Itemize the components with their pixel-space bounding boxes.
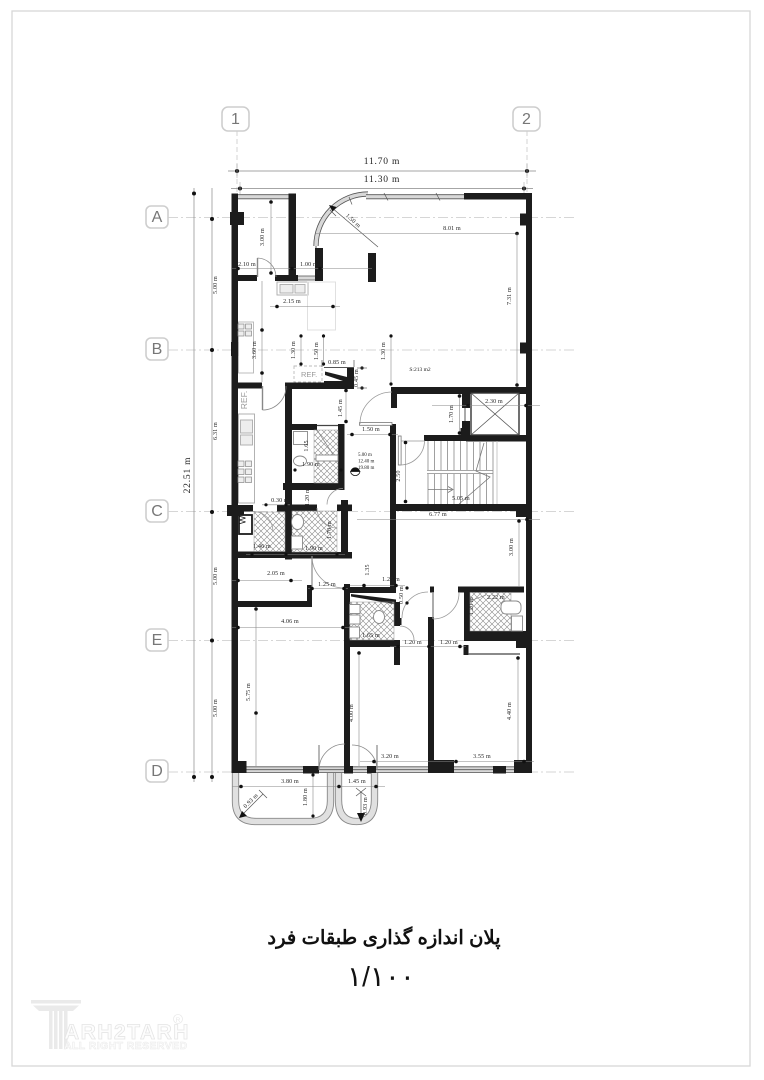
svg-text:پلان اندازه گذاری طبقات فرد: پلان اندازه گذاری طبقات فرد — [267, 925, 501, 950]
svg-text:2.30 m: 2.30 m — [485, 399, 503, 405]
svg-text:3.60 m: 3.60 m — [252, 341, 258, 359]
svg-text:1.70 m: 1.70 m — [327, 521, 333, 539]
svg-text:1: 1 — [231, 111, 240, 128]
svg-text:1.45 m: 1.45 m — [338, 399, 344, 417]
svg-text:3.00 m: 3.00 m — [509, 538, 515, 556]
svg-text:6.77 m: 6.77 m — [429, 512, 447, 518]
svg-text:12.40 m: 12.40 m — [358, 460, 375, 465]
svg-text:0.93 m: 0.93 m — [243, 793, 260, 810]
svg-text:2: 2 — [522, 111, 531, 128]
svg-text:REF.: REF. — [301, 370, 317, 379]
svg-text:2.05 m: 2.05 m — [267, 571, 285, 577]
svg-text:5.75 m: 5.75 m — [246, 683, 252, 701]
svg-text:1.25 m: 1.25 m — [382, 577, 400, 583]
svg-text:S:213 m2: S:213 m2 — [409, 367, 430, 373]
svg-text:0.30 m: 0.30 m — [271, 498, 289, 504]
svg-text:REF.: REF. — [239, 391, 249, 409]
svg-text:3.55 m: 3.55 m — [473, 754, 491, 760]
svg-text:W: W — [238, 515, 248, 524]
svg-text:1.50 m: 1.50 m — [314, 342, 320, 360]
svg-text:4.06 m: 4.06 m — [281, 619, 299, 625]
svg-text:0.45 m: 0.45 m — [354, 369, 360, 387]
svg-text:11.70 m: 11.70 m — [364, 157, 400, 167]
svg-text:1.20 m: 1.20 m — [305, 488, 311, 506]
svg-text:22.51 m: 22.51 m — [183, 457, 193, 494]
svg-text:2.15 m: 2.15 m — [283, 299, 301, 305]
svg-text:1.30 m: 1.30 m — [381, 342, 387, 360]
svg-text:0.93 m: 0.93 m — [363, 797, 369, 815]
svg-text:A: A — [152, 209, 163, 226]
svg-text:1.90 m: 1.90 m — [305, 546, 323, 552]
svg-text:1.45 m: 1.45 m — [348, 779, 366, 785]
svg-text:5.05 m: 5.05 m — [452, 496, 470, 502]
svg-text:1.70 m: 1.70 m — [449, 405, 455, 423]
svg-text:1.35: 1.35 — [365, 564, 371, 575]
svg-text:C: C — [151, 503, 163, 520]
svg-text:6.31 m: 6.31 m — [213, 422, 219, 440]
svg-text:3.20 m: 3.20 m — [381, 754, 399, 760]
svg-text:5.00 m: 5.00 m — [213, 699, 219, 717]
svg-text:5.00 m: 5.00 m — [358, 453, 372, 458]
svg-text:0.85 m: 0.85 m — [328, 360, 346, 366]
svg-text:2.50: 2.50 — [396, 470, 402, 481]
svg-text:1.65 m: 1.65 m — [362, 633, 380, 639]
svg-text:١/١٠٠: ١/١٠٠ — [347, 961, 415, 992]
svg-text:5.00 m: 5.00 m — [213, 567, 219, 585]
svg-text:D: D — [151, 763, 163, 780]
svg-text:7.31 m: 7.31 m — [507, 287, 513, 305]
svg-text:8.01 m: 8.01 m — [443, 226, 461, 232]
svg-text:4.40 m: 4.40 m — [507, 702, 513, 720]
svg-text:2.10 m: 2.10 m — [238, 262, 256, 268]
svg-text:E: E — [152, 632, 163, 649]
svg-text:1.20 m: 1.20 m — [440, 640, 458, 646]
svg-text:4.00 m: 4.00 m — [349, 704, 355, 722]
svg-text:0.50 m: 0.50 m — [399, 586, 405, 604]
svg-text:1.30 m: 1.30 m — [291, 341, 297, 359]
svg-text:1.00 m: 1.00 m — [300, 262, 318, 268]
svg-text:1.25 m: 1.25 m — [318, 582, 336, 588]
svg-text:11.30 m: 11.30 m — [364, 175, 400, 185]
svg-text:1.80 m: 1.80 m — [303, 788, 309, 806]
svg-text:1.50 m: 1.50 m — [362, 427, 380, 433]
svg-text:19.80 m: 19.80 m — [358, 466, 375, 471]
svg-text:1.50 m: 1.50 m — [344, 213, 361, 230]
svg-text:1.46 m: 1.46 m — [253, 544, 271, 550]
svg-text:1.90 m: 1.90 m — [302, 462, 320, 468]
svg-text:B: B — [152, 341, 163, 358]
svg-text:1.20 m: 1.20 m — [404, 640, 422, 646]
svg-text:3.00 m: 3.00 m — [260, 228, 266, 246]
svg-text:5.00 m: 5.00 m — [213, 276, 219, 294]
svg-text:2.22 m: 2.22 m — [487, 595, 505, 601]
svg-text:R: R — [176, 1017, 181, 1024]
svg-text:ALL RIGHT RESERVED: ALL RIGHT RESERVED — [64, 1040, 188, 1052]
svg-text:3.80 m: 3.80 m — [281, 779, 299, 785]
svg-text:1.65: 1.65 — [304, 440, 310, 451]
